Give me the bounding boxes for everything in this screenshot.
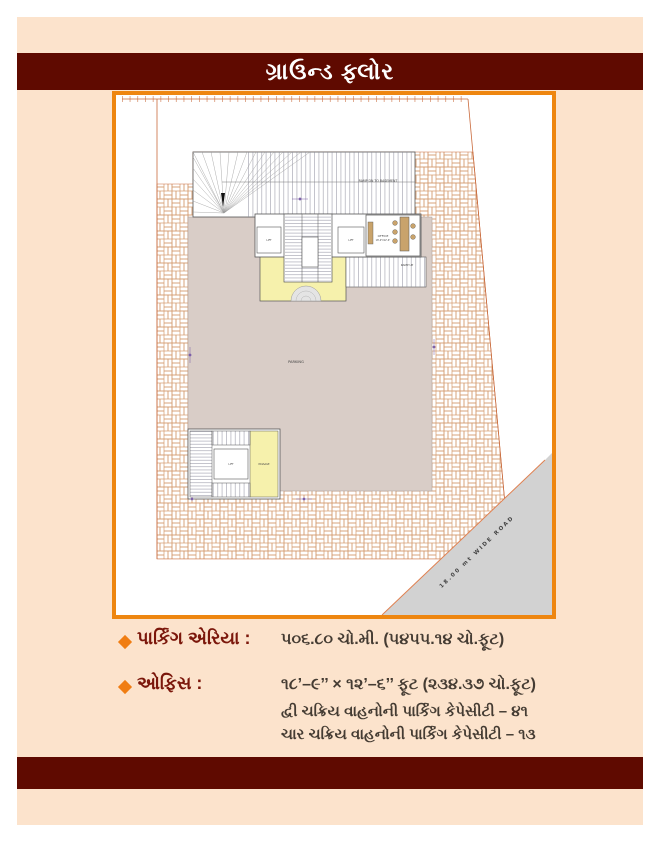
page-title: ગ્રાઉન્ડ ફ્લોર (266, 58, 395, 85)
office-label-row: ઓફિસ : (137, 673, 202, 694)
office-dim-label: 18'-9"X12'-6" (376, 239, 391, 242)
lift-left-label: LIFT (266, 238, 272, 242)
basement-ramp: RAMP DN TO BASEMENT (193, 152, 415, 217)
floor-plan-drawing: 18.00 mt WIDE ROAD PARKING RAMP DN TO BA… (116, 95, 552, 615)
parking-label: PARKING (288, 360, 304, 364)
lift-bottom-label: LIFT (228, 462, 234, 466)
floor-plan: 18.00 mt WIDE ROAD PARKING RAMP DN TO BA… (112, 91, 556, 619)
ramp-up-label: RAMP UP (401, 263, 414, 267)
parking-area-value: ૫૦૬.૮૦ ચો.મી. (૫૪૫૫.૧૪ ચો.ફૂટ) (281, 631, 504, 649)
bottom-bar (17, 757, 643, 789)
passage-label: PASSAGE (259, 463, 270, 466)
lift-right-label: LIFT (348, 238, 354, 242)
office-label: OFFICE (378, 234, 389, 238)
two-wheeler-capacity-note: દ્વી ચક્રિય વાહનોની પાર્કિંગ કેપેસીટી – … (281, 703, 528, 720)
office-value: ૧૮’–૯’’ × ૧૨’–૬’’ ફૂટ (૨૩૪.૩૭ ચો.ફૂટ) (281, 676, 536, 694)
title-bar: ગ્રાઉન્ડ ફ્લોર (17, 53, 643, 90)
ramp-dn-label: RAMP DN TO BASEMENT (359, 179, 398, 183)
parking-area-label: પાર્કિંગ એરિયા : (137, 628, 251, 649)
entrance-steps: RAMP UP (346, 257, 426, 287)
four-wheeler-capacity-note: ચાર ચક્રિય વાહનોની પાર્કિંગ કેપેસીટી – ૧… (281, 726, 536, 743)
